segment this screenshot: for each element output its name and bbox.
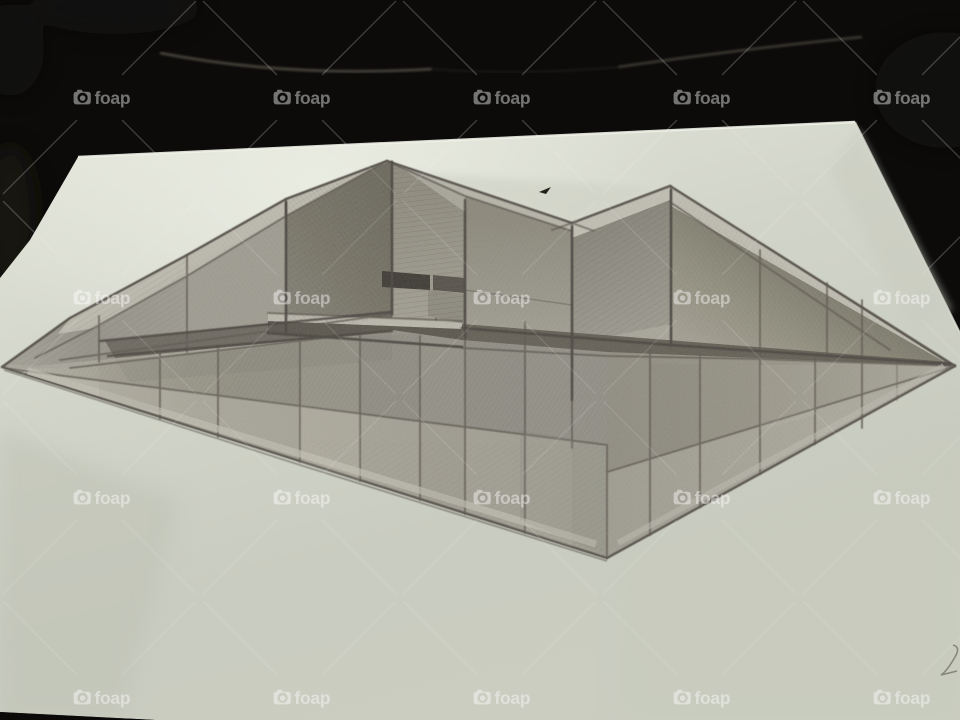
svg-text:foap: foap [895,88,931,108]
svg-text:foap: foap [95,688,131,708]
svg-text:foap: foap [695,688,731,708]
svg-text:foap: foap [295,688,331,708]
svg-text:foap: foap [895,288,931,308]
svg-text:foap: foap [295,288,331,308]
svg-text:foap: foap [495,288,531,308]
svg-text:foap: foap [495,488,531,508]
svg-text:foap: foap [895,688,931,708]
svg-text:foap: foap [495,688,531,708]
svg-text:foap: foap [695,88,731,108]
svg-text:foap: foap [95,88,131,108]
svg-text:foap: foap [695,488,731,508]
svg-text:foap: foap [495,88,531,108]
svg-text:foap: foap [895,488,931,508]
svg-text:foap: foap [695,288,731,308]
svg-text:foap: foap [295,88,331,108]
svg-text:foap: foap [95,288,131,308]
svg-text:foap: foap [95,488,131,508]
svg-text:foap: foap [295,488,331,508]
